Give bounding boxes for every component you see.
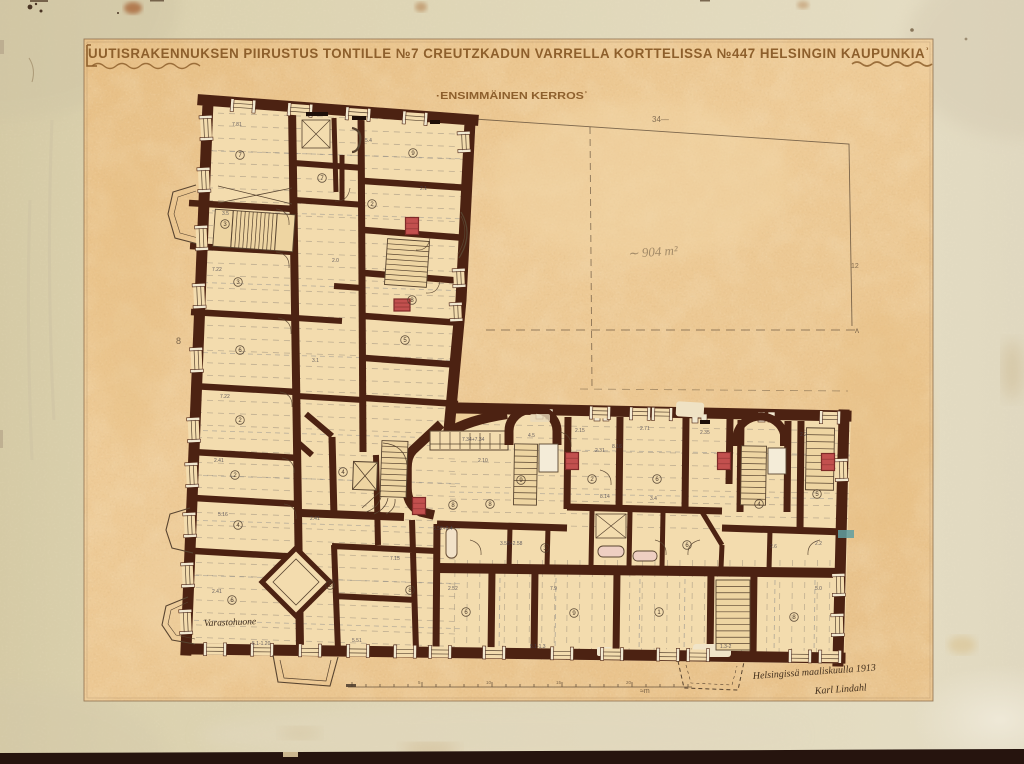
svg-text:2.52: 2.52 xyxy=(448,586,458,592)
svg-text:5.51: 5.51 xyxy=(352,638,362,644)
svg-text:4.5: 4.5 xyxy=(528,433,535,439)
svg-text:3.1: 3.1 xyxy=(312,358,319,364)
svg-text:15: 15 xyxy=(556,680,562,685)
svg-text:7.34+7.34: 7.34+7.34 xyxy=(462,437,485,443)
svg-text:2.41: 2.41 xyxy=(310,516,320,522)
svg-text:2.6: 2.6 xyxy=(770,544,777,550)
svg-text:2.31: 2.31 xyxy=(595,448,605,454)
svg-text:2.10: 2.10 xyxy=(478,458,488,464)
svg-text:ʌ: ʌ xyxy=(855,326,859,335)
svg-text:7.15: 7.15 xyxy=(390,556,400,562)
svg-text:UUTISRAKENNUKSEN PIIRUSTUS TON: UUTISRAKENNUKSEN PIIRUSTUS TONTILLE №7 C… xyxy=(88,46,930,61)
svg-text:10: 10 xyxy=(486,680,492,685)
svg-text:7.22: 7.22 xyxy=(212,267,222,273)
svg-text:Varastohuone: Varastohuone xyxy=(204,617,257,629)
svg-text:2.41: 2.41 xyxy=(214,458,224,464)
svg-text:2.2: 2.2 xyxy=(815,541,822,547)
svg-text:3.52+2.4: 3.52+2.4 xyxy=(433,526,453,532)
svg-text:5.4: 5.4 xyxy=(365,138,372,144)
svg-text:8: 8 xyxy=(176,336,181,346)
svg-text:34—: 34— xyxy=(652,115,669,124)
svg-text:2.15: 2.15 xyxy=(575,428,585,434)
svg-text:5.1-1.20: 5.1-1.20 xyxy=(252,641,271,647)
svg-text:3.5: 3.5 xyxy=(222,211,229,217)
svg-text:7.22: 7.22 xyxy=(220,394,230,400)
svg-text:7.81: 7.81 xyxy=(232,122,242,128)
svg-text:5.0: 5.0 xyxy=(815,586,822,592)
svg-text:8.16: 8.16 xyxy=(612,444,622,450)
svg-text:≈m: ≈m xyxy=(640,688,650,695)
svg-text:2.35: 2.35 xyxy=(700,430,710,436)
svg-text:2.71: 2.71 xyxy=(640,426,650,432)
svg-text:2.0: 2.0 xyxy=(332,258,339,264)
svg-text:3.4: 3.4 xyxy=(650,496,657,502)
svg-text:8.14: 8.14 xyxy=(600,494,610,500)
svg-text:12: 12 xyxy=(851,263,859,270)
svg-text:20: 20 xyxy=(626,680,632,685)
svg-text:5.1-1.3: 5.1-1.3 xyxy=(530,644,546,650)
svg-text:5.16: 5.16 xyxy=(218,512,228,518)
svg-text:7.9: 7.9 xyxy=(550,586,557,592)
svg-text:2.2: 2.2 xyxy=(800,432,807,438)
svg-text:2.1: 2.1 xyxy=(420,186,427,192)
svg-text:2.41: 2.41 xyxy=(212,589,222,595)
svg-text:·ENSIMMÄINEN KERROSʾ: ·ENSIMMÄINEN KERROSʾ xyxy=(436,89,588,102)
svg-text:1.3-2: 1.3-2 xyxy=(720,644,732,650)
svg-text:3.58+2.58: 3.58+2.58 xyxy=(500,541,523,547)
